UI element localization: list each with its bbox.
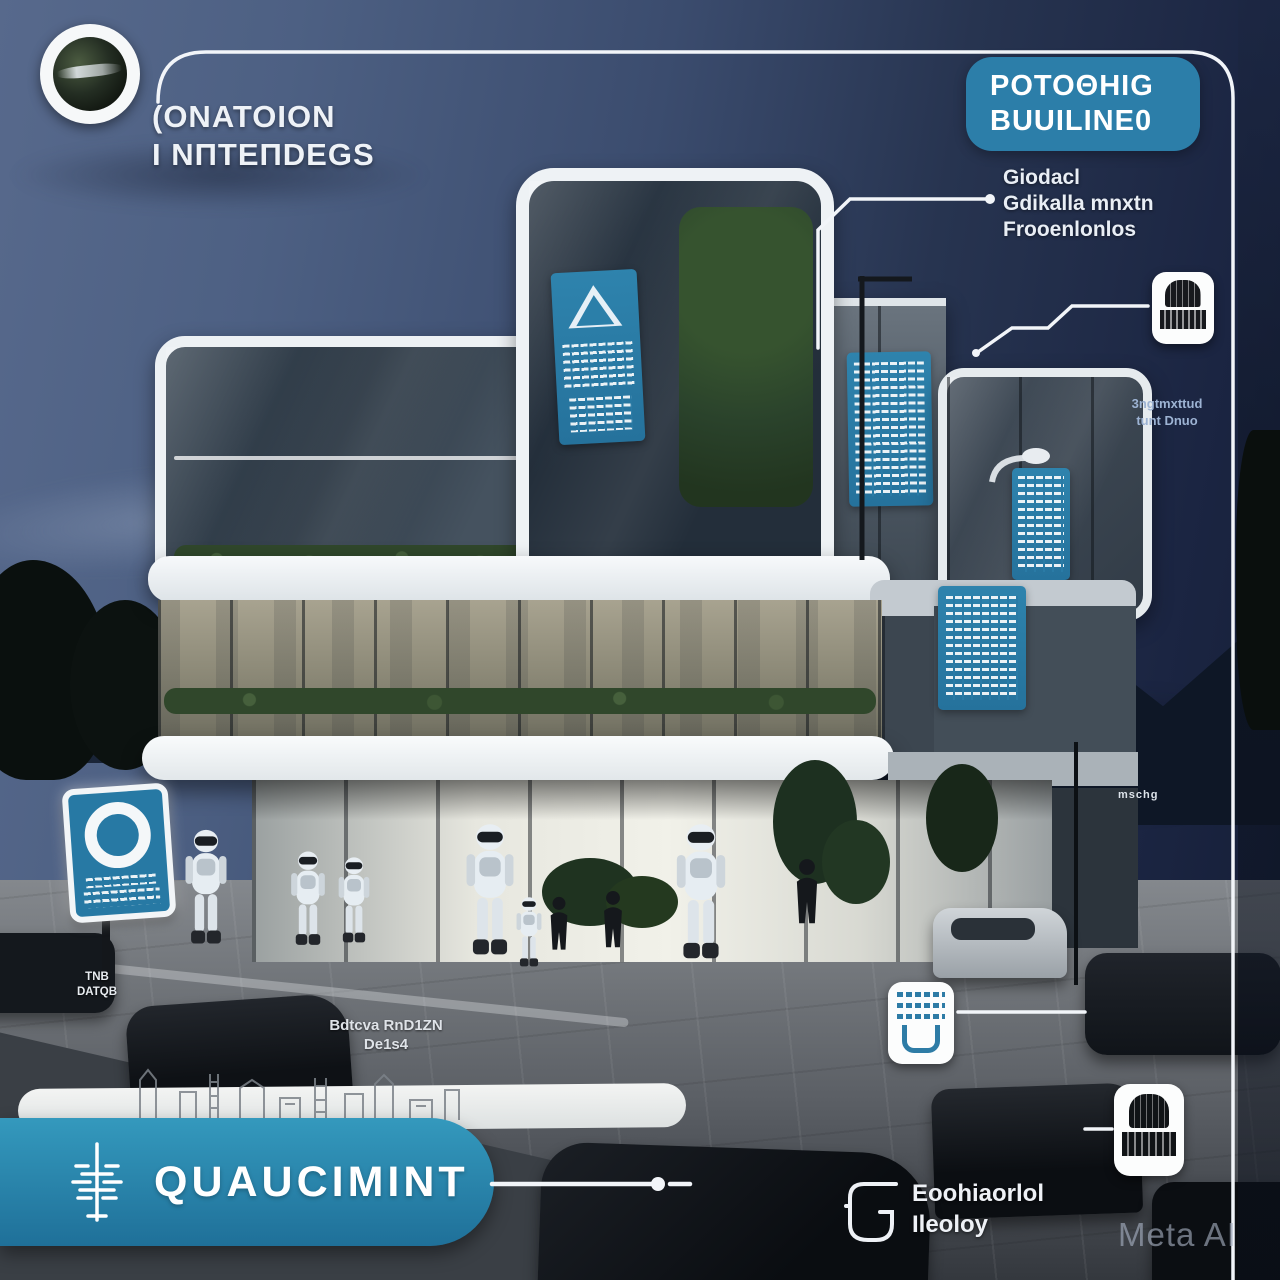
ground-floor-lobby xyxy=(252,780,1052,962)
description-line2: Gdikalla mnxtn xyxy=(1003,191,1154,217)
plaza-label: Bdtcva RnD1ZN De1s4 xyxy=(308,1016,464,1054)
globe-logo xyxy=(40,24,140,124)
white-car xyxy=(933,908,1067,978)
document-icon-card xyxy=(888,982,954,1064)
bottom-right-label: Eoohiaorlol Ileoloy xyxy=(912,1178,1044,1240)
sign-text-rows xyxy=(84,887,161,908)
top-right-description: Giodacl Gdikalla mnxtn Frooenlonlos xyxy=(1003,165,1154,243)
middle-floor-glass xyxy=(158,600,882,742)
bottom-banner: QUAUCIMINT xyxy=(0,1118,494,1246)
balcony-rail xyxy=(174,456,530,460)
sign-text-rows xyxy=(854,361,926,496)
document-line-icon xyxy=(897,1014,945,1019)
building-info-panel xyxy=(1012,468,1070,580)
building-info-panel xyxy=(847,351,934,506)
middle-floor-hedge xyxy=(164,688,876,714)
right-icon-label-line1: 3ngtmxttud xyxy=(1106,395,1228,412)
building-sign-triangle xyxy=(551,269,646,445)
building-center-tower xyxy=(516,168,834,594)
plaza-label-line2: De1s4 xyxy=(308,1035,464,1054)
indoor-trees xyxy=(679,207,813,507)
sign-text-rows xyxy=(1018,476,1064,572)
plaza-label-line1: Bdtcva RnD1ZN xyxy=(308,1016,464,1035)
bottom-right-label-line1: Eoohiaorlol xyxy=(912,1178,1044,1209)
bottom-right-label-line2: Ileoloy xyxy=(912,1209,1044,1240)
sign-text-rows xyxy=(946,596,1018,700)
monument-icon-card xyxy=(1114,1084,1184,1176)
left-small-label: TNB DATQB xyxy=(58,970,136,1000)
document-line-icon xyxy=(897,1003,945,1008)
building-dome-icon xyxy=(1165,280,1201,307)
document-line-icon xyxy=(897,992,945,997)
floor-slab-upper xyxy=(148,556,890,602)
monument-base-icon xyxy=(1122,1132,1176,1156)
meta-ai-watermark: Meta AI xyxy=(1118,1216,1237,1254)
sign-text-rows xyxy=(562,341,634,389)
badge-line1: POTOΘHIG xyxy=(990,69,1200,104)
window-mullions xyxy=(158,600,882,742)
sign-text-rows xyxy=(569,395,633,432)
top-right-badge: POTOΘHIG BUUILINE0 xyxy=(966,57,1200,151)
distant-sign-text: mschg xyxy=(1118,789,1158,801)
right-icon-label: 3ngtmxttud tunt Dnuo xyxy=(1106,395,1228,429)
right-icon-label-line2: tunt Dnuo xyxy=(1106,412,1228,429)
globe-highlight xyxy=(57,62,123,81)
banner-title: QUAUCIMINT xyxy=(154,1158,469,1207)
left-ring-sign xyxy=(61,782,176,923)
monument-dome-icon xyxy=(1129,1094,1169,1128)
foreground-car xyxy=(538,1141,933,1280)
left-small-label-line1: TNB xyxy=(58,970,136,985)
building-info-panel xyxy=(938,586,1026,710)
antenna-tower-icon xyxy=(68,1138,126,1226)
building-icon-card xyxy=(1152,272,1214,344)
sign-text-rows xyxy=(86,874,157,889)
poster-title-line1: (ONATOION xyxy=(152,98,375,136)
poster-title-line2: I NПTEПDEGS xyxy=(152,136,375,174)
u-glyph-icon xyxy=(902,1025,940,1053)
description-line3: Frooenlonlos xyxy=(1003,217,1154,243)
poster-canvas: TNB DATQB Bdtcva RnD1ZN De1s4 mschg 3ngt… xyxy=(0,0,1280,1280)
floor-slab-lower xyxy=(142,736,894,780)
description-line1: Giodacl xyxy=(1003,165,1154,191)
right-edge-tree xyxy=(1236,430,1280,730)
triangle-logo-inner xyxy=(575,294,615,326)
poster-title: (ONATOION I NПTEПDEGS xyxy=(152,98,375,174)
canopy-shadow xyxy=(252,780,1052,820)
left-small-label-line2: DATQB xyxy=(58,985,136,1000)
globe-icon xyxy=(53,37,127,111)
ring-icon xyxy=(83,800,153,870)
badge-line2: BUUILINE0 xyxy=(990,104,1200,139)
building-base-icon xyxy=(1160,310,1206,329)
car-window xyxy=(951,918,1035,940)
